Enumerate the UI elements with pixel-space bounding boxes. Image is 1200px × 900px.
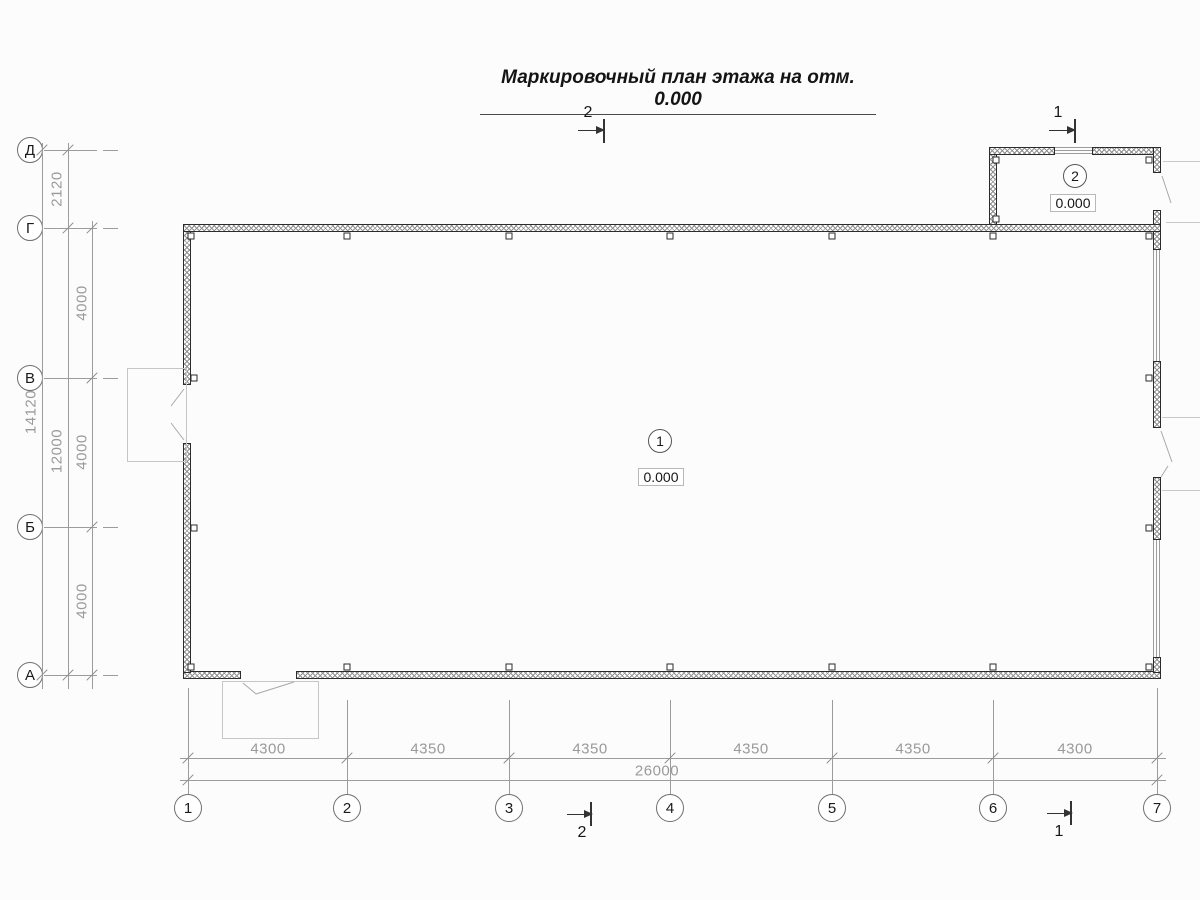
wall-bottom [183, 671, 241, 679]
window [1153, 250, 1154, 361]
column-marker [829, 664, 836, 671]
column-marker [344, 664, 351, 671]
row-axis-bubble: Д [17, 137, 43, 163]
col-axis-bubble: 1 [174, 794, 202, 822]
col-axis-bubble: 5 [818, 794, 846, 822]
wall-left [183, 231, 191, 385]
row-axis-label: В [25, 370, 35, 387]
leader-line [1162, 490, 1200, 491]
column-marker [1146, 525, 1153, 532]
room-tag-circle: 1 [648, 429, 672, 453]
dimension-label: 4350 [572, 741, 607, 758]
window [1159, 250, 1160, 361]
wall-annex-top [989, 147, 1055, 155]
dimension-line [42, 143, 43, 689]
dimension-label: 14120 [23, 390, 40, 434]
column-marker [188, 664, 195, 671]
dimension-label: 12000 [49, 429, 66, 473]
column-marker [990, 664, 997, 671]
row-axis-label: А [25, 667, 35, 684]
wall-annex-right [1153, 210, 1161, 225]
wall-bottom [296, 671, 1161, 679]
dimension-label-total: 26000 [635, 763, 679, 780]
dimension-label: 4350 [410, 741, 445, 758]
door-swing [1161, 431, 1172, 462]
elevation-value: 0.000 [643, 469, 678, 485]
col-axis-label: 7 [1153, 800, 1161, 817]
row-axis-label: Г [26, 220, 34, 237]
window [1156, 250, 1157, 361]
column-marker [667, 233, 674, 240]
col-axis-bubble: 4 [656, 794, 684, 822]
section-line [590, 802, 592, 826]
window [1159, 540, 1160, 657]
column-marker [990, 233, 997, 240]
elevation-value: 0.000 [1055, 195, 1090, 211]
col-axis-bubble: 7 [1143, 794, 1171, 822]
door-swing [1161, 466, 1168, 477]
column-marker [344, 233, 351, 240]
dimension-label: 4300 [1057, 741, 1092, 758]
leader-line [1166, 222, 1200, 223]
col-axis-bubble: 6 [979, 794, 1007, 822]
column-marker [1146, 157, 1153, 164]
door-swing [1162, 176, 1171, 203]
dimension-label: 4300 [250, 741, 285, 758]
dimension-label: 4000 [74, 285, 91, 320]
section-mark-label: 1 [1055, 823, 1064, 841]
row-axis-bubble: А [17, 662, 43, 688]
porch-outline [127, 368, 187, 462]
window [1055, 147, 1092, 148]
leader-line [1163, 161, 1200, 162]
wall-annex-right [1153, 147, 1161, 173]
col-axis-label: 6 [989, 800, 997, 817]
section-mark-label: 2 [578, 824, 587, 842]
window [1156, 540, 1157, 657]
window [1153, 540, 1154, 657]
wall-right [1153, 361, 1161, 428]
row-axis-bubble: Б [17, 514, 43, 540]
column-marker [1146, 233, 1153, 240]
row-axis-label: Б [25, 519, 35, 536]
section-mark-label: 2 [584, 104, 593, 122]
wall-right [1153, 477, 1161, 540]
wall-right [1153, 657, 1161, 673]
elevation-box: 0.000 [638, 468, 684, 486]
window [1055, 153, 1092, 154]
dimension-label: 4350 [733, 741, 768, 758]
axis-line-dash [103, 150, 118, 151]
axis-line-dash [103, 675, 118, 676]
section-line [1070, 801, 1072, 825]
dimension-line [180, 780, 1166, 781]
section-line [1074, 119, 1076, 143]
drawing-title: Маркировочный план этажа на отм. 0.000 [480, 67, 876, 115]
dimension-label: 4000 [74, 583, 91, 618]
row-axis-bubble: В [17, 365, 43, 391]
room-number: 2 [1071, 168, 1079, 184]
porch-outline [222, 681, 319, 739]
column-marker [1146, 375, 1153, 382]
room-number: 1 [656, 433, 664, 449]
section-line [603, 119, 605, 143]
row-axis-label: Д [25, 142, 35, 159]
room-tag-circle: 2 [1063, 164, 1087, 188]
elevation-box: 0.000 [1050, 194, 1096, 212]
row-axis-bubble: Г [17, 215, 43, 241]
col-axis-bubble: 3 [495, 794, 523, 822]
window [1055, 150, 1092, 151]
wall-left [183, 443, 191, 673]
dimension-label: 4350 [895, 741, 930, 758]
column-marker [191, 525, 198, 532]
column-marker [993, 157, 1000, 164]
axis-line-dash [103, 228, 118, 229]
column-marker [506, 664, 513, 671]
dimension-label: 4000 [74, 434, 91, 469]
col-axis-label: 2 [343, 800, 351, 817]
col-axis-label: 1 [184, 800, 192, 817]
column-marker [829, 233, 836, 240]
axis-line-dash [103, 527, 118, 528]
wall-right [1153, 231, 1161, 250]
column-marker [191, 375, 198, 382]
column-marker [188, 233, 195, 240]
dimension-line [180, 758, 1166, 759]
col-axis-label: 3 [505, 800, 513, 817]
col-axis-bubble: 2 [333, 794, 361, 822]
column-marker [993, 216, 1000, 223]
dimension-label: 2120 [49, 171, 66, 206]
col-axis-label: 4 [666, 800, 674, 817]
col-axis-label: 5 [828, 800, 836, 817]
column-marker [506, 233, 513, 240]
column-marker [667, 664, 674, 671]
floor-plan-drawing: Маркировочный план этажа на отм. 0.000 Д… [0, 0, 1200, 900]
dimension-line [92, 221, 93, 689]
wall-top [183, 224, 1161, 232]
axis-line-dash [103, 378, 118, 379]
section-mark-label: 1 [1054, 104, 1063, 122]
leader-line [1162, 417, 1200, 418]
column-marker [1146, 664, 1153, 671]
wall-annex-top [1092, 147, 1161, 155]
axis-line [44, 150, 97, 151]
